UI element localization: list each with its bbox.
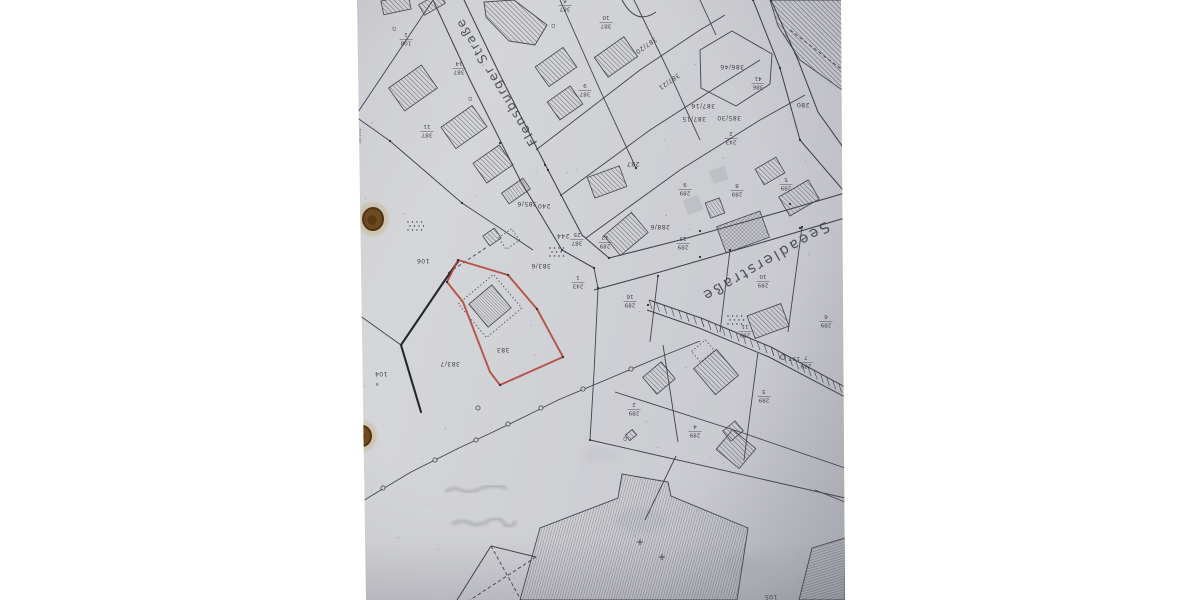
punch-hole-center xyxy=(357,433,365,442)
parcel-number-label: 383/6 xyxy=(531,262,551,269)
parcel-number-label: 244 xyxy=(556,232,569,239)
tree-symbol: Ω xyxy=(392,25,396,31)
cadastral-map-svg: 287288/6386/46385/30387/16387/15387/2138… xyxy=(356,0,845,600)
parcel-fraction-label: 2432 xyxy=(725,130,738,144)
boundary-node-dot xyxy=(635,167,637,169)
boundary-node-dot xyxy=(789,203,791,205)
svg-text:387: 387 xyxy=(571,240,582,246)
boundary-node-dot xyxy=(446,281,448,283)
svg-text:289: 289 xyxy=(677,244,688,250)
boundary-node-dot xyxy=(801,226,803,228)
boundary-stone-marker xyxy=(629,367,633,371)
svg-text:41: 41 xyxy=(754,75,762,81)
boundary-node-dot xyxy=(400,344,402,346)
building-hatched xyxy=(717,211,770,253)
svg-text:387: 387 xyxy=(453,69,464,75)
svg-text:2: 2 xyxy=(632,401,636,407)
tree-symbol: Ω xyxy=(468,95,472,101)
svg-text:14: 14 xyxy=(455,60,463,66)
svg-text:289: 289 xyxy=(780,185,791,191)
boundary-node-dot xyxy=(597,287,599,289)
parcel-boundary-line xyxy=(655,341,700,359)
boundary-node-dot xyxy=(544,164,546,166)
parcel-fraction-label: 2898 xyxy=(731,182,744,196)
boundary-node-dot xyxy=(657,275,659,277)
svg-text:6: 6 xyxy=(824,313,828,319)
parcel-number-label: 280 xyxy=(796,101,809,108)
building-hatched xyxy=(502,178,531,204)
boundary-node-dot xyxy=(779,67,781,69)
parcel-fraction-label: 2899 xyxy=(679,181,692,195)
svg-text:4: 4 xyxy=(693,423,697,429)
parcel-number-label: 383/7 xyxy=(440,360,460,367)
boundary-node-dot xyxy=(647,304,649,306)
svg-text:108: 108 xyxy=(400,40,411,46)
parcel-fraction-label: 38641 xyxy=(752,75,765,89)
svg-text:9: 9 xyxy=(583,82,587,88)
building-hatched xyxy=(535,47,577,86)
tree-symbol: Ω xyxy=(623,435,627,441)
parcel-fraction-label: 28910 xyxy=(757,273,770,287)
parcel-fraction-label: 38711 xyxy=(421,123,434,137)
building-hatched xyxy=(643,362,676,394)
svg-text:8: 8 xyxy=(735,182,739,188)
structure-line xyxy=(457,546,491,600)
parcel-boundary-line xyxy=(590,288,598,440)
svg-text:8: 8 xyxy=(563,0,567,3)
tree-symbol: Ω xyxy=(551,22,555,28)
building-hatched xyxy=(389,65,438,111)
building-pencil-shaded xyxy=(683,195,704,216)
svg-text:387: 387 xyxy=(600,23,611,29)
parcel-number-label: 385/30 xyxy=(717,114,741,121)
boundary-node-dot xyxy=(844,214,845,216)
boundary-stone-marker xyxy=(433,458,437,462)
parcel-383-7-thick-outline xyxy=(401,260,459,412)
boundary-node-dot xyxy=(561,249,563,251)
parcel-boundary-line xyxy=(560,0,636,168)
boundary-node-dot xyxy=(799,139,801,141)
building-hatched xyxy=(483,228,501,246)
parcel-boundary-line xyxy=(700,0,716,35)
svg-text:387: 387 xyxy=(579,91,590,97)
street-curve xyxy=(622,0,656,17)
svg-text:25: 25 xyxy=(573,231,581,237)
parcel-fraction-label: 2895 xyxy=(780,176,793,190)
screenshot-root: 287288/6386/46385/30387/16387/15387/2138… xyxy=(0,0,1200,600)
svg-text:10: 10 xyxy=(759,273,767,279)
boundary-stone-marker xyxy=(381,486,385,490)
svg-text:289: 289 xyxy=(624,302,635,308)
parcel-number-label: 387/16 xyxy=(691,102,715,109)
boundary-stone-marker xyxy=(506,422,510,426)
parcel-number-label: 106 xyxy=(416,257,429,264)
structure-line xyxy=(491,546,536,557)
parcel-fraction-label: 3879 xyxy=(579,82,592,96)
map-sheet-edge-label: 18/101 xyxy=(357,128,363,144)
svg-text:13: 13 xyxy=(679,235,687,241)
svg-text:387: 387 xyxy=(559,6,570,12)
boundary-node-dot xyxy=(844,392,845,394)
parcel-boundary-line xyxy=(594,268,598,288)
boundary-node-dot xyxy=(461,202,463,204)
parcel-boundary-line xyxy=(560,60,760,196)
map-photo: 287288/6386/46385/30387/16387/15387/2138… xyxy=(356,0,845,600)
parcel-number-label: 105 xyxy=(764,593,777,600)
paper-smudge xyxy=(582,447,618,463)
parcel-number-label: 240 xyxy=(537,202,550,209)
svg-text:289: 289 xyxy=(599,243,610,249)
building-hatched xyxy=(694,349,739,394)
boundary-stone-marker xyxy=(581,387,585,391)
parcel-boundary-line xyxy=(815,490,845,502)
building-hatched xyxy=(587,166,626,198)
parcel-boundary-line xyxy=(356,313,401,345)
dot-cluster xyxy=(549,247,566,256)
parcel-number-label: 387/21 xyxy=(657,71,681,91)
faint-pencil-note xyxy=(452,518,516,526)
boundary-node-dot xyxy=(499,142,501,144)
parcel-number-label: 387/15 xyxy=(682,115,706,122)
svg-text:1: 1 xyxy=(404,31,408,37)
building-pencil-shaded xyxy=(709,166,729,185)
dashed-boundary-line xyxy=(491,546,521,600)
boundary-node-dot xyxy=(562,356,564,358)
faint-pencil-note xyxy=(445,486,507,492)
parcel-fraction-label: 38714 xyxy=(453,60,466,74)
svg-text:289: 289 xyxy=(820,322,831,328)
svg-text:289: 289 xyxy=(689,432,700,438)
svg-text:11: 11 xyxy=(741,323,749,329)
svg-text:289: 289 xyxy=(739,332,750,338)
building-hatched xyxy=(755,157,785,185)
building-hatched xyxy=(705,198,725,218)
svg-text:289: 289 xyxy=(758,397,769,403)
parcel-fraction-label: 28911 xyxy=(739,323,752,337)
svg-text:11: 11 xyxy=(423,123,431,129)
boundary-node-dot xyxy=(593,267,595,269)
svg-text:289: 289 xyxy=(757,282,768,288)
boundary-node-dot xyxy=(442,282,444,284)
boundary-node-dot xyxy=(608,257,610,259)
building-hatched xyxy=(747,304,789,339)
svg-text:289: 289 xyxy=(628,410,639,416)
building-hatched xyxy=(473,145,513,183)
parcel-fraction-label: 2894 xyxy=(689,423,702,437)
building-hatched xyxy=(799,538,845,600)
svg-text:289: 289 xyxy=(679,190,690,196)
boundary-node-dot xyxy=(729,249,731,251)
parcel-number-label: 386/46 xyxy=(720,63,744,70)
parcel-number-label: 104 xyxy=(374,370,387,377)
punch-hole xyxy=(356,426,371,446)
boundary-node-dot xyxy=(507,274,509,276)
parcel-fraction-label: 28916 xyxy=(624,293,637,307)
large-building-vertical-hatch xyxy=(520,474,748,600)
dot-cluster xyxy=(407,221,424,230)
tree-symbol: a xyxy=(375,381,378,387)
boundary-stone-line xyxy=(356,359,655,505)
boundary-node-dot xyxy=(457,259,459,261)
svg-text:10: 10 xyxy=(602,14,610,20)
parcel-fraction-label: 2431 xyxy=(572,274,585,288)
svg-text:5: 5 xyxy=(784,176,788,182)
building-hatched xyxy=(419,0,446,15)
svg-text:387: 387 xyxy=(421,132,432,138)
parcel-boundary-line xyxy=(650,276,658,342)
boundary-node-dot xyxy=(547,169,549,171)
parcel-fraction-label: 2892 xyxy=(628,401,641,415)
boundary-node-dot xyxy=(420,411,422,413)
svg-text:3: 3 xyxy=(762,388,766,394)
parcel-number-label: 287 xyxy=(626,160,639,167)
track-edge-line xyxy=(647,310,845,397)
boundary-node-dot xyxy=(389,140,391,142)
parcel-boundary-line xyxy=(536,15,725,150)
svg-text:243: 243 xyxy=(572,283,583,289)
boundary-node-dot xyxy=(536,308,538,310)
building-hatched xyxy=(547,86,583,120)
parcel-number-label: 387/20 xyxy=(634,35,658,55)
parcel-fraction-label: 2897 xyxy=(800,354,813,368)
boundary-node-dot xyxy=(356,312,357,314)
boundary-node-dot xyxy=(356,114,357,116)
boundary-stone-marker xyxy=(476,406,480,410)
svg-text:289: 289 xyxy=(731,191,742,197)
parcel-fraction-label: 2893 xyxy=(758,388,771,402)
boundary-node-dot xyxy=(699,230,701,232)
building-hatched xyxy=(469,285,511,327)
svg-text:16: 16 xyxy=(626,293,634,299)
punch-hole-center xyxy=(368,215,377,225)
svg-text:1: 1 xyxy=(576,274,580,280)
svg-text:7: 7 xyxy=(804,354,808,360)
building-hatched xyxy=(594,37,637,77)
boundary-node-dot xyxy=(699,256,701,258)
svg-text:386: 386 xyxy=(752,84,763,90)
parcel-boundary-line xyxy=(663,345,678,442)
svg-text:289: 289 xyxy=(800,363,811,369)
svg-text:12: 12 xyxy=(601,234,608,240)
building-hatched xyxy=(770,0,845,92)
boundary-node-dot xyxy=(844,187,845,189)
boundary-stone-marker xyxy=(474,438,478,442)
building-hatched xyxy=(381,0,411,15)
parcel-fraction-label: 38710 xyxy=(600,14,613,28)
boundary-node-dot xyxy=(499,384,501,386)
parcel-fraction-label: 2896 xyxy=(820,313,833,327)
building-hatched xyxy=(441,105,487,148)
building-hatched xyxy=(484,0,547,45)
parcel-number-label: 383 xyxy=(496,346,509,353)
parcel-number-label: 288/6 xyxy=(650,223,670,230)
svg-text:2: 2 xyxy=(729,130,733,136)
svg-text:9: 9 xyxy=(683,181,687,187)
boundary-stone-marker xyxy=(539,406,543,410)
parcel-number-label: 385/6 xyxy=(517,200,537,207)
boundary-node-dot xyxy=(589,439,591,441)
point-number-label: 197 xyxy=(788,355,800,361)
boundary-node-dot xyxy=(799,227,801,229)
svg-text:243: 243 xyxy=(725,139,736,145)
